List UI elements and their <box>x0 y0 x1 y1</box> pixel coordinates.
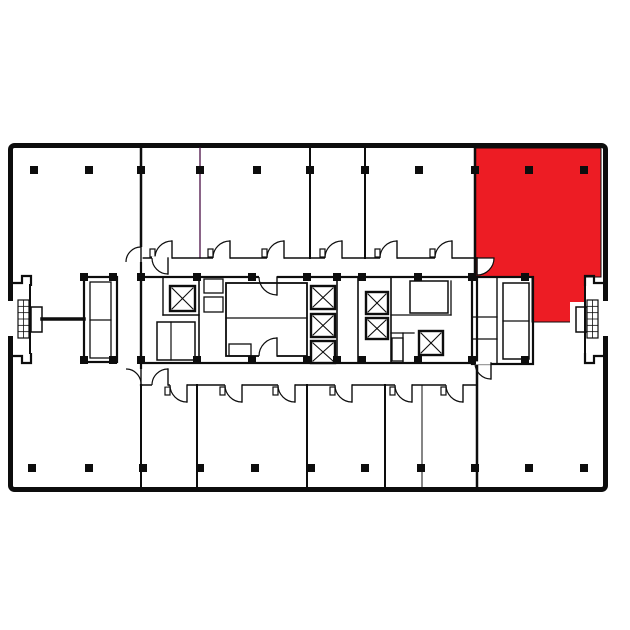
structural-column <box>30 166 38 174</box>
structural-column <box>251 464 259 472</box>
column-pier <box>303 356 311 364</box>
door-latch <box>430 249 435 257</box>
door-gap <box>267 256 284 259</box>
door-gap <box>380 256 397 259</box>
structural-column <box>525 166 533 174</box>
structural-column <box>307 464 315 472</box>
column-pier <box>137 356 145 364</box>
door-latch <box>220 387 225 395</box>
structural-column <box>361 166 369 174</box>
door-gap <box>259 275 277 278</box>
column-pier <box>468 356 476 364</box>
door-gap <box>278 383 295 386</box>
structural-column <box>139 464 147 472</box>
column-pier <box>80 273 88 281</box>
door-gap <box>152 256 168 259</box>
column-pier <box>358 356 366 364</box>
elevator-icon <box>311 314 335 337</box>
door-gap <box>475 361 491 364</box>
door-latch <box>390 387 395 395</box>
door-gap <box>435 256 452 259</box>
door-gap <box>446 383 463 386</box>
structural-column <box>471 464 479 472</box>
door-gap <box>152 383 168 386</box>
structural-column <box>137 166 145 174</box>
suite-knockout <box>570 302 586 323</box>
door-gap <box>335 383 352 386</box>
column-pier <box>80 356 88 364</box>
door-latch <box>165 387 170 395</box>
outer-wall-opening <box>602 301 610 336</box>
door-latch <box>262 249 267 257</box>
column-pier <box>248 356 256 364</box>
structural-column <box>525 464 533 472</box>
elevator-icon <box>311 286 335 309</box>
column-pier <box>193 273 201 281</box>
door-gap <box>213 256 230 259</box>
door-latch <box>375 249 380 257</box>
structural-column <box>580 166 588 174</box>
column-pier <box>303 273 311 281</box>
column-pier <box>358 273 366 281</box>
floor-plan-page <box>0 0 630 630</box>
column-pier <box>521 273 529 281</box>
door-latch <box>208 249 213 257</box>
structural-column <box>306 166 314 174</box>
door-gap <box>259 354 277 357</box>
door-gap <box>395 383 412 386</box>
column-pier <box>521 356 529 364</box>
door-gap <box>225 383 242 386</box>
door-latch <box>330 387 335 395</box>
column-pier <box>414 273 422 281</box>
floor-plan-svg <box>0 0 630 630</box>
structural-column <box>415 166 423 174</box>
column-pier <box>248 273 256 281</box>
column-pier <box>333 356 341 364</box>
column-pier <box>414 356 422 364</box>
structural-column <box>471 166 479 174</box>
column-pier <box>137 273 145 281</box>
door-latch <box>441 387 446 395</box>
outer-wall-opening <box>6 301 14 336</box>
structural-column <box>253 166 261 174</box>
door-gap <box>325 256 342 259</box>
structural-column <box>196 166 204 174</box>
door-latch <box>320 249 325 257</box>
structural-column <box>361 464 369 472</box>
structural-column <box>580 464 588 472</box>
door-latch <box>273 387 278 395</box>
column-pier <box>193 356 201 364</box>
elevator-icon <box>419 331 443 355</box>
column-pier <box>333 273 341 281</box>
column-pier <box>109 273 117 281</box>
elevator-icon <box>311 341 335 363</box>
structural-column <box>28 464 36 472</box>
door-latch <box>150 249 155 257</box>
door-gap <box>170 383 187 386</box>
elevator-icon <box>366 292 388 314</box>
structural-column <box>417 464 425 472</box>
elevator-icon <box>170 286 195 311</box>
structural-column <box>196 464 204 472</box>
ladder-icon <box>18 300 29 338</box>
column-pier <box>468 273 476 281</box>
elevator-icon <box>366 318 388 339</box>
column-pier <box>109 356 117 364</box>
structural-column <box>85 166 93 174</box>
ladder-icon <box>587 300 598 338</box>
structural-column <box>85 464 93 472</box>
